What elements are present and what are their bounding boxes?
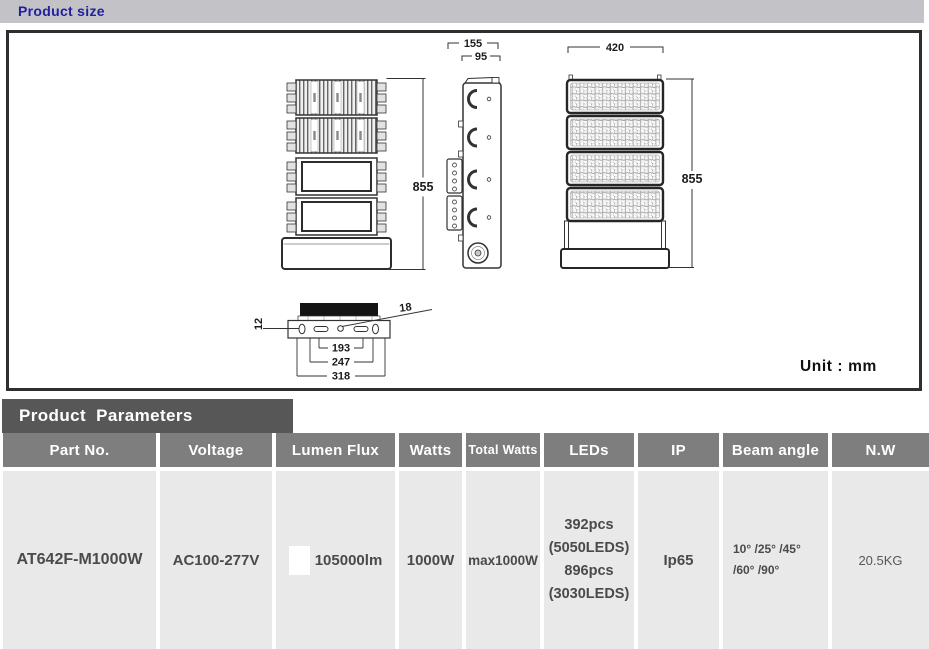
leds-line-4: (3030LEDS) xyxy=(549,583,630,606)
parameters-table-data-row: AT642F-M1000W AC100-277V 105000lm 1000W … xyxy=(3,471,929,649)
cell-total-watts: max1000W xyxy=(466,471,540,649)
cell-watts: 1000W xyxy=(399,471,462,649)
leds-line-1: 392pcs xyxy=(564,514,613,537)
technical-drawing: 855 155 95 xyxy=(9,33,919,388)
bottom-view-drawing: 12 18 193 247 318 xyxy=(253,301,432,382)
beam-angle-line-1: 10° /25° /45° xyxy=(733,539,801,560)
column-header-lumen-flux: Lumen Flux xyxy=(276,433,395,467)
product-drawing-panel: 855 155 95 xyxy=(6,30,922,391)
column-header-voltage: Voltage xyxy=(160,433,272,467)
lumen-flux-value: 105000lm xyxy=(315,552,383,569)
side-view-drawing: 155 95 xyxy=(447,38,501,268)
product-parameters-header: Product Parameters xyxy=(2,399,293,433)
white-swatch xyxy=(289,546,310,575)
unit-label: Unit : mm xyxy=(800,358,877,375)
column-header-part-no: Part No. xyxy=(3,433,156,467)
cell-ip: Ip65 xyxy=(638,471,719,649)
mount-thickness-dim-label: 12 xyxy=(253,318,265,330)
column-header-total-watts: Total Watts xyxy=(466,433,540,467)
column-header-beam-angle: Beam angle xyxy=(723,433,828,467)
cell-net-weight: 20.5KG xyxy=(832,471,929,649)
back-view-drawing: 855 xyxy=(282,79,433,270)
product-size-title: Product size xyxy=(0,0,924,23)
parameters-table: Part No. Voltage Lumen Flux Watts Total … xyxy=(3,433,929,649)
column-header-nw: N.W xyxy=(832,433,929,467)
front-view-drawing: 420 855 xyxy=(561,42,702,268)
column-header-ip: IP xyxy=(638,433,719,467)
cell-lumen-flux: 105000lm xyxy=(276,471,395,649)
product-size-header-bar: Product size xyxy=(0,0,924,23)
cell-leds: 392pcs (5050LEDS) 896pcs (3030LEDS) xyxy=(544,471,634,649)
back-height-dim-label: 855 xyxy=(413,180,434,194)
leds-line-3: 896pcs xyxy=(564,560,613,583)
mount-slot-span-dim-label: 193 xyxy=(332,343,350,355)
front-height-dim-label: 855 xyxy=(682,172,703,186)
column-header-leds: LEDs xyxy=(544,433,634,467)
side-body-dim-label: 95 xyxy=(475,51,487,63)
column-header-watts: Watts xyxy=(399,433,462,467)
mount-hole-dim-label: 18 xyxy=(399,301,413,315)
leds-line-2: (5050LEDS) xyxy=(549,537,630,560)
product-parameters-title: Product Parameters xyxy=(19,406,193,425)
beam-angle-line-2: /60° /90° xyxy=(733,560,779,581)
parameters-table-header-row: Part No. Voltage Lumen Flux Watts Total … xyxy=(3,433,929,467)
front-width-dim-label: 420 xyxy=(606,42,624,54)
cell-part-no: AT642F-M1000W xyxy=(3,471,156,649)
mount-width-dim-label: 318 xyxy=(332,371,350,383)
mount-hole-span-dim-label: 247 xyxy=(332,357,350,369)
cell-voltage: AC100-277V xyxy=(160,471,272,649)
side-depth-dim-label: 155 xyxy=(464,38,482,50)
cell-beam-angle: 10° /25° /45° /60° /90° xyxy=(723,471,828,649)
